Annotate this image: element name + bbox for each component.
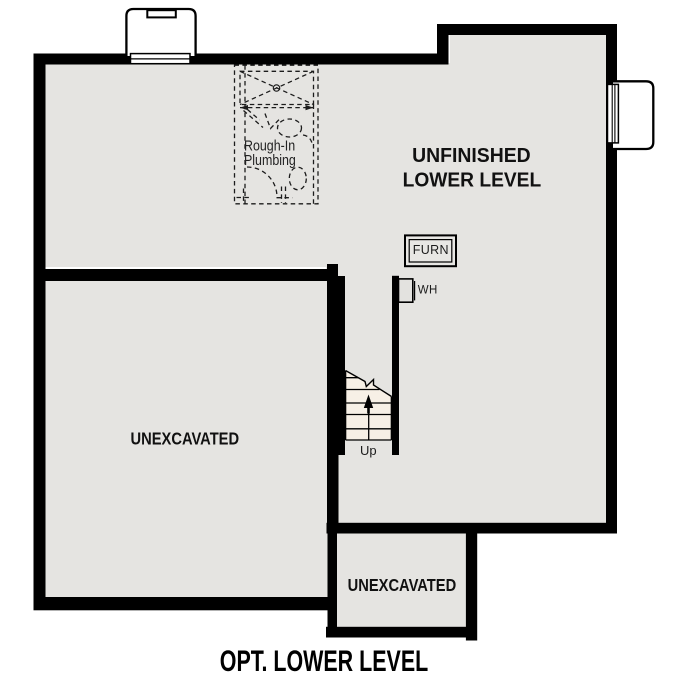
svg-text:Up: Up <box>360 443 377 458</box>
svg-text:Rough-In: Rough-In <box>244 137 295 153</box>
svg-text:UNEXCAVATED: UNEXCAVATED <box>131 429 240 448</box>
svg-text:WH: WH <box>418 284 438 296</box>
svg-text:UNFINISHED: UNFINISHED <box>412 145 530 167</box>
svg-text:LOWER LEVEL: LOWER LEVEL <box>403 169 542 191</box>
svg-text:OPT. LOWER LEVEL: OPT. LOWER LEVEL <box>220 644 428 679</box>
svg-text:UNEXCAVATED: UNEXCAVATED <box>348 576 457 595</box>
svg-text:Plumbing: Plumbing <box>244 152 296 168</box>
svg-text:FURN: FURN <box>413 243 449 257</box>
